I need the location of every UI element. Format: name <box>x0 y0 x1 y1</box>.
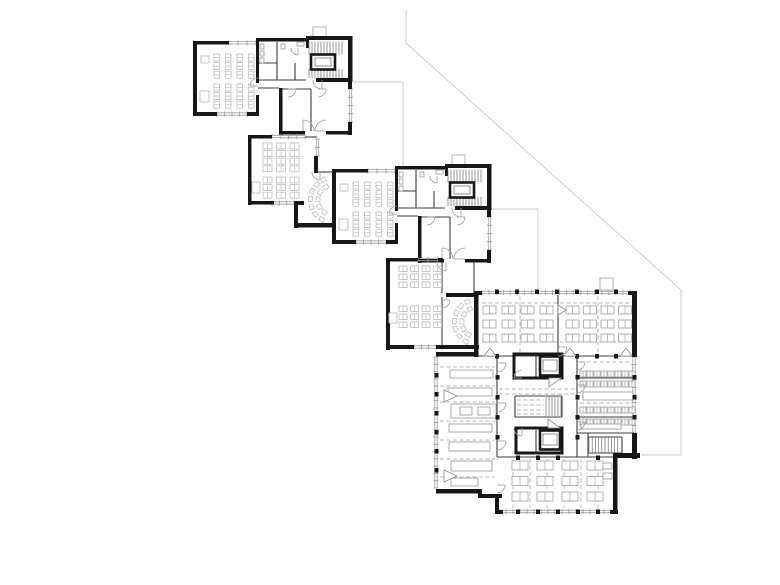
site-outline-layer <box>353 10 681 455</box>
floor-plan-page <box>0 0 780 585</box>
floor-plan-drawing <box>0 0 780 585</box>
classroom-annex-east <box>386 257 479 350</box>
classroom-wing-unit-2 <box>332 164 492 263</box>
skylight-squares-layer <box>313 27 613 290</box>
main-hall-block <box>433 290 640 515</box>
classroom-wing-unit-1 <box>193 36 353 135</box>
classroom-annex-west <box>248 134 336 228</box>
